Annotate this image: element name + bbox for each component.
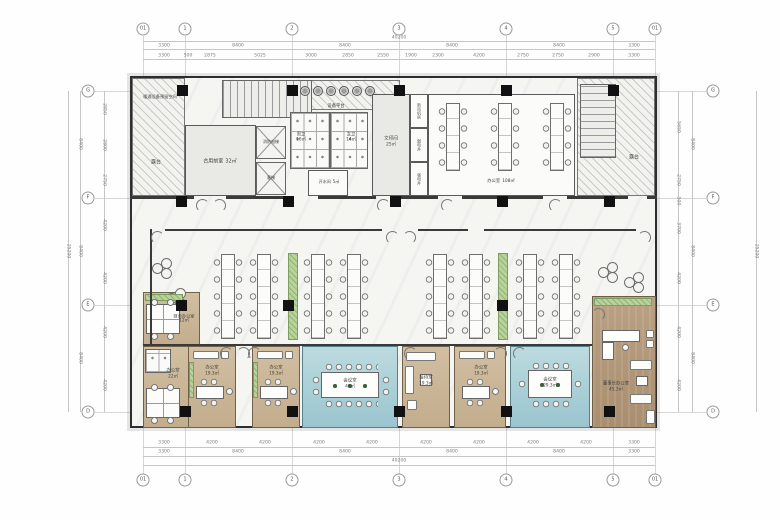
door-arc <box>494 347 507 360</box>
grid-bubble-bottom: 3 <box>393 474 406 487</box>
column <box>497 300 508 311</box>
room-label-fresh-air: 新风机房 <box>416 103 422 119</box>
dim-label: 5025 <box>254 54 266 59</box>
planter-strip <box>288 253 298 340</box>
armchair <box>646 330 654 338</box>
chairs <box>263 378 283 386</box>
wall-segment <box>143 344 592 346</box>
dim-label: 2850 <box>102 103 107 115</box>
dim-label: 8400 <box>553 44 565 49</box>
planter-strip <box>253 362 258 398</box>
room-label-hot-water: 开水间 5㎡ <box>319 179 340 185</box>
room-label-hvac-reserve: 暖通设备预留空间 <box>143 94 177 100</box>
desk-cluster <box>212 253 244 340</box>
door-arc <box>549 199 562 212</box>
room-label-office-2: 办公室 19.3㎡ <box>269 366 283 377</box>
dim-label: 8400 <box>78 138 83 150</box>
dim-label: 2900 <box>588 54 600 59</box>
dim-label: 8400 <box>339 44 351 49</box>
desk-cluster <box>514 253 546 340</box>
room-label-office-3: 办公室 19.3㎡ <box>474 366 488 377</box>
column <box>604 196 615 207</box>
dim-label: 4200 <box>366 441 378 446</box>
plant-cluster <box>152 258 172 280</box>
chair <box>492 388 499 395</box>
dim-label: 3300 <box>628 54 640 59</box>
dim-label: 4200 <box>676 326 681 338</box>
desk-cluster <box>541 102 573 172</box>
chairs <box>324 363 378 371</box>
dimension-line <box>143 41 655 42</box>
floor-plan-sheet: 40200 3300 8400 8400 8400 8400 3300 3300… <box>0 0 780 520</box>
grid-bubble-top: 5 <box>607 23 620 36</box>
room-label-office-left: 办公室 22㎡ <box>166 369 179 380</box>
chairs <box>465 378 485 386</box>
room-label-terrace-left: 露台 <box>151 159 161 166</box>
sofa <box>630 360 652 370</box>
grid-bubble-top: 01 <box>137 23 150 36</box>
dim-label: 500 <box>676 197 681 206</box>
chair <box>622 344 629 351</box>
planter-strip <box>189 362 194 398</box>
grid-bubble-bottom: 4 <box>500 474 513 487</box>
plant-cluster <box>624 272 644 294</box>
dim-label: 40200 <box>392 36 407 41</box>
column <box>390 196 401 207</box>
column <box>283 196 294 207</box>
dim-label: 4200 <box>676 379 681 391</box>
dim-label: 8400 <box>78 352 83 364</box>
dim-label: 4200 <box>473 441 485 446</box>
table-plant <box>333 384 337 388</box>
dim-label: 25200 <box>754 244 759 259</box>
executive-desk <box>602 330 640 342</box>
door-arc <box>151 231 164 244</box>
desk-cluster <box>338 253 370 340</box>
grid-bubble-bottom: 5 <box>607 474 620 487</box>
door-arc <box>248 347 261 360</box>
dim-label: 2750 <box>102 174 107 186</box>
wall-segment <box>567 196 628 199</box>
column <box>608 85 619 96</box>
desk-cluster <box>460 253 492 340</box>
chair <box>151 333 158 340</box>
planter-strip <box>498 253 508 340</box>
wall-segment <box>150 229 152 345</box>
armchair <box>285 351 293 359</box>
door-arc <box>441 199 454 212</box>
dim-label: 8400 <box>553 450 565 455</box>
door-arc <box>404 347 417 360</box>
dim-label: 2875 <box>204 54 216 59</box>
dim-label: 8400 <box>690 138 695 150</box>
dim-label: 8400 <box>446 450 458 455</box>
grid-bubble-top: 4 <box>500 23 513 36</box>
sofa <box>630 394 652 404</box>
column <box>394 406 405 417</box>
room-label-weak-power: 弱电井 <box>416 139 422 151</box>
desk-cluster <box>424 253 456 340</box>
equipment-circle <box>313 86 323 96</box>
chairs <box>324 400 378 408</box>
wall-segment <box>318 196 376 199</box>
armchair <box>407 400 417 410</box>
dim-label: 500 <box>184 54 193 59</box>
door-arc <box>213 199 226 212</box>
sofa <box>459 351 485 359</box>
dim-label: 4200 <box>206 441 218 446</box>
dimension-line <box>143 447 655 448</box>
dim-label: 8400 <box>690 245 695 257</box>
dimension-line <box>143 465 655 466</box>
dim-label: 8400 <box>232 44 244 49</box>
equipment-circle <box>365 86 375 96</box>
office-desk <box>196 386 224 399</box>
room-label-shared-lobby: 合用前室 32㎡ <box>203 158 236 165</box>
grid-bubble-right: E <box>707 299 720 312</box>
dimension-line <box>143 59 655 60</box>
chair <box>167 384 174 391</box>
grid-bubble-left: G <box>82 85 95 98</box>
grid-bubble-right: D <box>707 406 720 419</box>
dim-label: 3300 <box>628 450 640 455</box>
dim-label: 2800 <box>102 139 107 151</box>
dim-label: 3300 <box>628 441 640 446</box>
room-label-reception: 接待室 19.3㎡ <box>419 376 433 387</box>
chair <box>167 299 174 306</box>
equipment-circle <box>300 86 310 96</box>
grid-bubble-left: D <box>82 406 95 419</box>
dim-label: 1900 <box>405 54 417 59</box>
room-label-office-1: 办公室 19.3㎡ <box>205 366 219 377</box>
table-plant <box>363 384 367 388</box>
chairs <box>531 362 571 370</box>
equipment-circle <box>352 86 362 96</box>
room-label-fire-elevator: 消防电梯 <box>263 139 279 145</box>
chairs <box>199 378 219 386</box>
dim-label: 4200 <box>102 326 107 338</box>
door-arc <box>638 231 651 244</box>
chairs <box>382 374 390 398</box>
dimension-line <box>143 49 655 50</box>
armchair <box>646 340 654 348</box>
dim-label: 25200 <box>66 244 71 259</box>
room-label-passenger-elevator: 客梯 <box>267 175 275 181</box>
grid-bubble-right: G <box>707 85 720 98</box>
wall-segment <box>165 229 382 231</box>
wall-segment <box>647 196 657 199</box>
dim-label: 2750 <box>552 54 564 59</box>
dim-label: 2750 <box>676 174 681 186</box>
door-arc <box>220 347 233 360</box>
room-label-mens-toilet: 男卫 16㎡ <box>296 133 306 144</box>
dim-label: 4200 <box>102 379 107 391</box>
column <box>176 300 187 311</box>
sofa <box>405 366 414 394</box>
wall-segment <box>418 229 468 231</box>
column <box>394 85 405 96</box>
dim-label: 2300 <box>432 54 444 59</box>
dim-label: 4200 <box>473 54 485 59</box>
chair <box>167 333 174 340</box>
dim-label: 4200 <box>580 441 592 446</box>
desk-return <box>602 342 614 360</box>
chairs <box>312 374 320 398</box>
plant-cluster <box>598 262 618 284</box>
dim-label: 8400 <box>690 352 695 364</box>
dim-label: 3000 <box>305 54 317 59</box>
column <box>176 196 187 207</box>
chairs <box>263 399 283 407</box>
chair <box>151 417 158 424</box>
room-label-equipment-platform: 设备平台 <box>327 103 344 109</box>
dim-label: 2850 <box>342 54 354 59</box>
desk-cluster <box>550 253 582 340</box>
sofa <box>193 351 219 359</box>
column <box>177 85 188 96</box>
workstation-desk <box>146 388 180 418</box>
grid-bubble-bottom: 01 <box>137 474 150 487</box>
grid-bubble-top: 3 <box>393 23 406 36</box>
grid-bubble-left: F <box>82 192 95 205</box>
dim-label: 4200 <box>102 219 107 231</box>
chairs <box>531 400 571 408</box>
grid-bubble-bottom: 2 <box>286 474 299 487</box>
room-label-meeting-large: 会议室 40㎡ <box>343 379 356 390</box>
door-arc <box>386 231 399 244</box>
dim-label: 8400 <box>232 450 244 455</box>
column <box>287 406 298 417</box>
room-label-office-top: 办公室 108㎡ <box>487 178 514 184</box>
chairs <box>574 378 582 390</box>
dim-label: 3700 <box>676 222 681 234</box>
dim-label: 8400 <box>446 44 458 49</box>
door-arc <box>403 231 416 244</box>
dim-label: 3300 <box>628 44 640 49</box>
dim-label: 3300 <box>158 450 170 455</box>
chair <box>226 388 233 395</box>
dim-label: 40200 <box>392 459 407 464</box>
chairs <box>465 399 485 407</box>
room-label-chairman-office: 董事长办公室 45.3㎡ <box>603 382 629 393</box>
dim-label: 4200 <box>527 441 539 446</box>
equipment-circle <box>339 86 349 96</box>
door-arc <box>377 199 390 212</box>
column <box>287 85 298 96</box>
room-label-finance-office: 财务办公室 12㎡ <box>174 314 195 325</box>
dimension-line <box>678 91 679 412</box>
dim-label: 4200 <box>259 441 271 446</box>
grid-bubble-bottom: 1 <box>179 474 192 487</box>
chair <box>151 384 158 391</box>
dim-label: 3300 <box>158 54 170 59</box>
equipment-units <box>300 86 375 96</box>
column <box>501 406 512 417</box>
office-desk <box>462 386 490 399</box>
wall-segment <box>484 229 636 231</box>
equipment-circle <box>326 86 336 96</box>
dim-label: 5650 <box>676 121 681 133</box>
grid-bubble-top: 01 <box>649 23 662 36</box>
dim-label: 8400 <box>339 450 351 455</box>
cabinet <box>646 410 655 424</box>
office-desk <box>260 386 288 399</box>
dim-label: 4200 <box>420 441 432 446</box>
column <box>501 85 512 96</box>
dim-label: 2750 <box>517 54 529 59</box>
room-label-meeting-small: 会议室 29.3㎡ <box>543 378 557 389</box>
room-label-terrace-right: 露台 <box>629 154 639 161</box>
dim-label: 4200 <box>313 441 325 446</box>
door-arc <box>196 199 209 212</box>
column <box>283 300 294 311</box>
dim-label: 4200 <box>676 272 681 284</box>
grid-bubble-right: F <box>707 192 720 205</box>
dimension-line <box>143 456 655 457</box>
chair <box>290 388 297 395</box>
dim-label: 3300 <box>158 441 170 446</box>
grid-bubble-top: 1 <box>179 23 192 36</box>
desk-cluster <box>437 102 469 172</box>
door-arc <box>513 347 526 360</box>
dim-label: 2550 <box>377 54 389 59</box>
dim-label: 8400 <box>78 245 83 257</box>
chairs <box>199 399 219 407</box>
column <box>497 196 508 207</box>
coffee-table <box>636 376 648 386</box>
column <box>604 406 615 417</box>
grid-bubble-left: E <box>82 299 95 312</box>
chair <box>167 417 174 424</box>
room-label-womens-toilet: 女卫 14㎡ <box>346 133 356 144</box>
desk-cluster <box>248 253 280 340</box>
dim-label: 3300 <box>158 44 170 49</box>
dim-label: 4200 <box>102 272 107 284</box>
desk-cluster <box>489 102 521 172</box>
grid-bubble-top: 2 <box>286 23 299 36</box>
door-arc <box>592 308 605 321</box>
room-label-print-room: 文印间 25㎡ <box>384 136 398 147</box>
room-label-strong-power: 强电井 <box>416 173 422 185</box>
grid-bubble-bottom: 01 <box>649 474 662 487</box>
desk-cluster <box>302 253 334 340</box>
planter-strip <box>594 298 652 306</box>
column <box>180 406 191 417</box>
chair <box>151 299 158 306</box>
chairs <box>518 378 526 390</box>
